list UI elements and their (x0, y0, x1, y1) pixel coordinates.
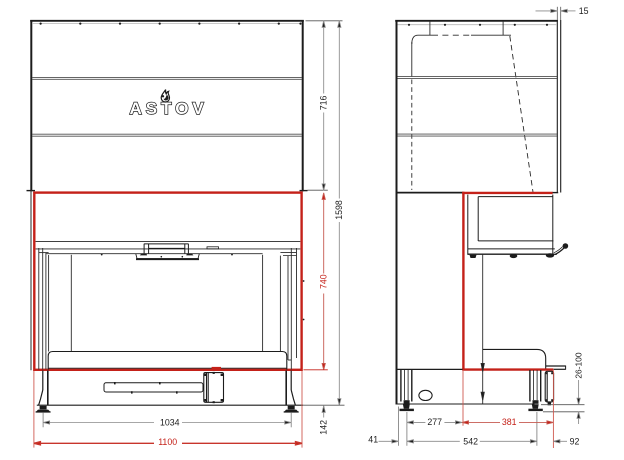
svg-text:26-100: 26-100 (573, 352, 583, 378)
svg-text:542: 542 (463, 437, 478, 447)
svg-text:1100: 1100 (158, 437, 177, 447)
svg-text:716: 716 (318, 96, 328, 111)
svg-text:41: 41 (368, 435, 378, 445)
svg-text:381: 381 (502, 417, 517, 427)
svg-text:92: 92 (570, 437, 580, 447)
svg-text:277: 277 (427, 417, 442, 427)
svg-text:ASTOV: ASTOV (130, 99, 208, 118)
svg-text:1598: 1598 (334, 200, 344, 220)
svg-text:740: 740 (318, 274, 328, 289)
svg-text:15: 15 (579, 6, 589, 16)
svg-text:142: 142 (318, 420, 328, 435)
svg-text:1034: 1034 (160, 417, 180, 427)
